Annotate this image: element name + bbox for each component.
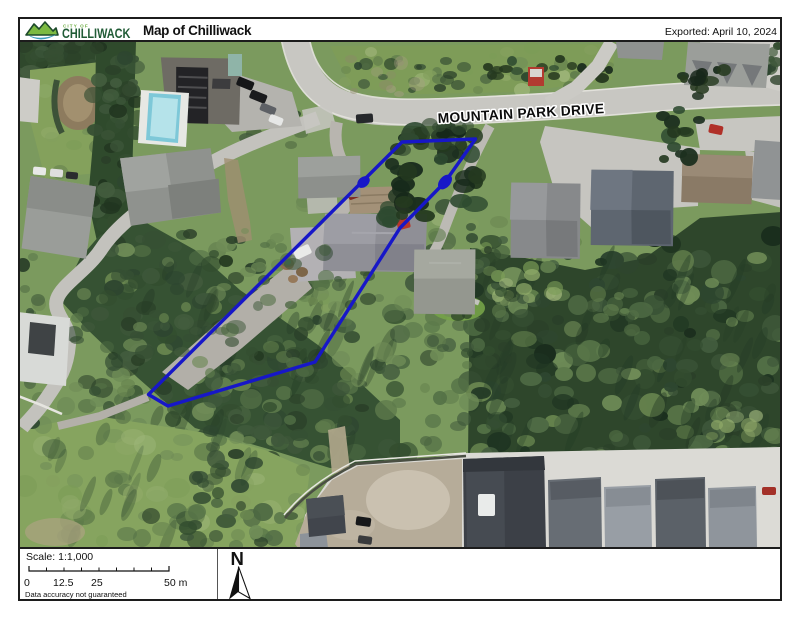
svg-text:25: 25 bbox=[91, 577, 103, 589]
svg-text:50 m: 50 m bbox=[164, 577, 188, 589]
svg-text:0: 0 bbox=[24, 577, 30, 589]
svg-text:N: N bbox=[231, 549, 244, 569]
svg-text:Data accuracy not guaranteed: Data accuracy not guaranteed bbox=[25, 590, 127, 599]
svg-text:CHILLIWACK: CHILLIWACK bbox=[62, 26, 130, 41]
svg-text:12.5: 12.5 bbox=[53, 577, 74, 589]
